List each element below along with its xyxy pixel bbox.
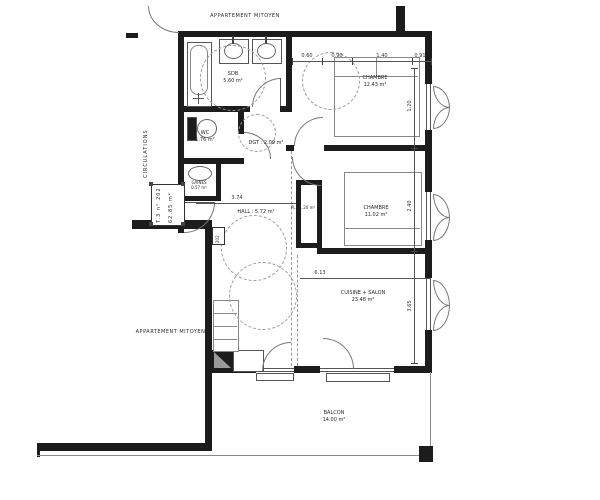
dim-line-hall bbox=[196, 203, 296, 204]
wall-bottom-seg2 bbox=[294, 366, 320, 373]
wall-left bbox=[178, 31, 184, 203]
window3-glazing-2 bbox=[430, 278, 431, 330]
room-name: BALCON bbox=[324, 410, 345, 416]
wall-placard-west bbox=[296, 180, 301, 248]
dim-line-top bbox=[292, 61, 432, 62]
window2-glazing bbox=[426, 192, 427, 240]
window1-shutter-icon bbox=[433, 107, 450, 129]
neighbor-top-label: APPARTEMENT MITOYEN bbox=[200, 13, 290, 20]
room-label-chambre2: CHAMBRE 11.02 m² bbox=[352, 205, 400, 219]
balcony-door-glazing-2 bbox=[320, 371, 394, 372]
kitchen-block-triangle bbox=[214, 352, 231, 368]
cupboard-grid-line bbox=[213, 339, 237, 340]
room-area: 5.60 m² bbox=[223, 78, 243, 84]
room-area: 11.02 m² bbox=[365, 212, 388, 218]
room-label-wc: WC 1.76 m² bbox=[190, 130, 220, 144]
gaine-fixture-icon bbox=[188, 166, 212, 181]
joint-line-dashed bbox=[291, 151, 292, 366]
circulations-label: CIRCULATIONS bbox=[143, 108, 149, 178]
dim-tick bbox=[292, 58, 293, 65]
sink-right-basin bbox=[257, 43, 276, 59]
dim-right-1: 1.20 bbox=[407, 94, 413, 118]
sink-left-tap-icon bbox=[232, 36, 234, 44]
wall-sdb-south-2 bbox=[280, 106, 292, 112]
cupboard-grid-line bbox=[213, 326, 237, 327]
balcony-door-threshold bbox=[326, 373, 390, 382]
wall-placard-east bbox=[317, 180, 322, 248]
room-label-sdb: SDB 5.60 m² bbox=[213, 71, 253, 85]
wall-west-lower bbox=[205, 229, 212, 451]
dim-tick bbox=[411, 148, 418, 149]
dim-tick bbox=[431, 58, 432, 65]
unit-tag-corner bbox=[149, 182, 153, 186]
bed-chambre2-footer-line bbox=[344, 228, 420, 229]
window2-glazing-2 bbox=[430, 192, 431, 240]
dim-right-2: 2.40 bbox=[407, 194, 413, 218]
kitchen-counter bbox=[233, 350, 264, 372]
wall-stub-top-left bbox=[126, 33, 138, 38]
window2-shutter-icon bbox=[433, 217, 450, 241]
window3-glazing bbox=[426, 278, 427, 330]
balcony-door-arc bbox=[323, 338, 354, 369]
wall-wc-south bbox=[184, 158, 244, 164]
room-label-chambre1: CHAMBRE 12.43 m² bbox=[353, 75, 397, 89]
dim-top-2: 0.90 bbox=[325, 53, 349, 59]
window3-shutter-icon bbox=[433, 280, 450, 306]
room-area: 12.43 m² bbox=[364, 82, 387, 88]
room-area: 23.48 m² bbox=[352, 297, 375, 303]
sdb-door-leaf bbox=[280, 78, 281, 106]
joint-line-dashed-2 bbox=[297, 255, 298, 366]
room-area: 14.00 m² bbox=[323, 417, 346, 423]
room-area: 1.76 m² bbox=[195, 137, 215, 143]
room-name: CHAMBRE bbox=[362, 75, 387, 81]
room-name: SDB bbox=[228, 71, 238, 77]
south-window-threshold bbox=[256, 373, 294, 381]
wall-right-seg2 bbox=[425, 130, 432, 192]
floor-plan: 0.60 0.90 1.40 0.91 1.20 2.40 3.65 3.74 … bbox=[0, 0, 600, 500]
dim-tick bbox=[411, 363, 418, 364]
dim-tick bbox=[412, 58, 413, 65]
sink-right-tap-icon bbox=[265, 36, 267, 44]
dim-top-1: 0.60 bbox=[295, 53, 319, 59]
wall-right-seg4 bbox=[425, 330, 432, 372]
dim-top-4: 0.91 bbox=[408, 53, 432, 59]
chambre1-door-arc bbox=[294, 117, 323, 146]
window1-shutter-icon bbox=[433, 86, 450, 108]
room-name: CHAMBRE bbox=[363, 205, 388, 211]
room-name: GAINES bbox=[191, 180, 206, 185]
unit-tag-box: T.3 n° 202 62.85 m² bbox=[151, 184, 185, 226]
wall-stub-top-right bbox=[396, 6, 405, 31]
room-label-hall: HALL : 5.72 m² bbox=[226, 209, 286, 216]
balcony-rail-right bbox=[430, 372, 431, 456]
kitchen-window-door-arc bbox=[262, 342, 291, 371]
dim-tick bbox=[352, 58, 353, 65]
dim-tick bbox=[411, 68, 418, 69]
neighbor-left-label: APPARTEMENT MITOYEN bbox=[123, 329, 218, 336]
door-plate-box: 202 bbox=[212, 227, 225, 245]
dim-tick bbox=[322, 58, 323, 65]
dim-right-3: 3.65 bbox=[407, 294, 413, 318]
turning-circle-cuisine bbox=[229, 262, 297, 330]
unit-tag-line1: T.3 n° 202 bbox=[156, 187, 162, 223]
unit-tag-corner bbox=[181, 182, 185, 186]
balcony-rail-left-wing bbox=[37, 443, 211, 451]
dim-line-cuisine bbox=[300, 278, 430, 279]
unit-tag-line2: 62.85 m² bbox=[168, 192, 174, 223]
wall-right-seg3 bbox=[425, 240, 432, 278]
dim-cuisine-width: 6.13 bbox=[305, 270, 335, 276]
room-name: WC bbox=[201, 130, 209, 136]
balcony-rail-bottom bbox=[37, 455, 432, 456]
bathtub-faucet-icon bbox=[198, 93, 199, 104]
bed-chambre1-pillow-divider bbox=[376, 57, 377, 76]
wall-sdb-chambre1 bbox=[286, 37, 292, 112]
room-label-dgt: DGT : 2.09 m² bbox=[240, 140, 292, 147]
dim-hall-width: 3.74 bbox=[222, 195, 252, 201]
room-area: 0.57 m² bbox=[191, 185, 207, 190]
unit-tag-corner bbox=[149, 222, 153, 226]
unit-tag-corner bbox=[181, 222, 185, 226]
window1-glazing bbox=[426, 84, 427, 130]
balcony-corner-block bbox=[419, 446, 433, 462]
corridor-door-arc bbox=[148, 6, 179, 33]
window2-shutter-icon bbox=[433, 194, 450, 218]
room-name: CUISINE + SALON bbox=[341, 290, 386, 296]
room-label-cuisine: CUISINE + SALON 23.48 m² bbox=[328, 290, 398, 304]
window3-shutter-icon bbox=[433, 305, 450, 331]
wall-top bbox=[178, 31, 432, 37]
unit-tag-text-2: 62.85 m² bbox=[168, 187, 174, 223]
dim-tick bbox=[411, 251, 418, 252]
window1-glazing-2 bbox=[430, 84, 431, 130]
room-label-gaine: GAINES 0.57 m² bbox=[180, 180, 218, 191]
dim-top-3: 1.40 bbox=[370, 53, 394, 59]
room-label-placard: PL : 1.20 m² bbox=[284, 205, 322, 210]
door-plate-number: 202 bbox=[215, 229, 220, 243]
unit-tag-text: T.3 n° 202 bbox=[156, 187, 162, 223]
wall-gaine-south bbox=[184, 196, 221, 201]
dim-line-right bbox=[414, 68, 415, 364]
room-label-balcon: BALCON 14.00 m² bbox=[312, 410, 356, 424]
